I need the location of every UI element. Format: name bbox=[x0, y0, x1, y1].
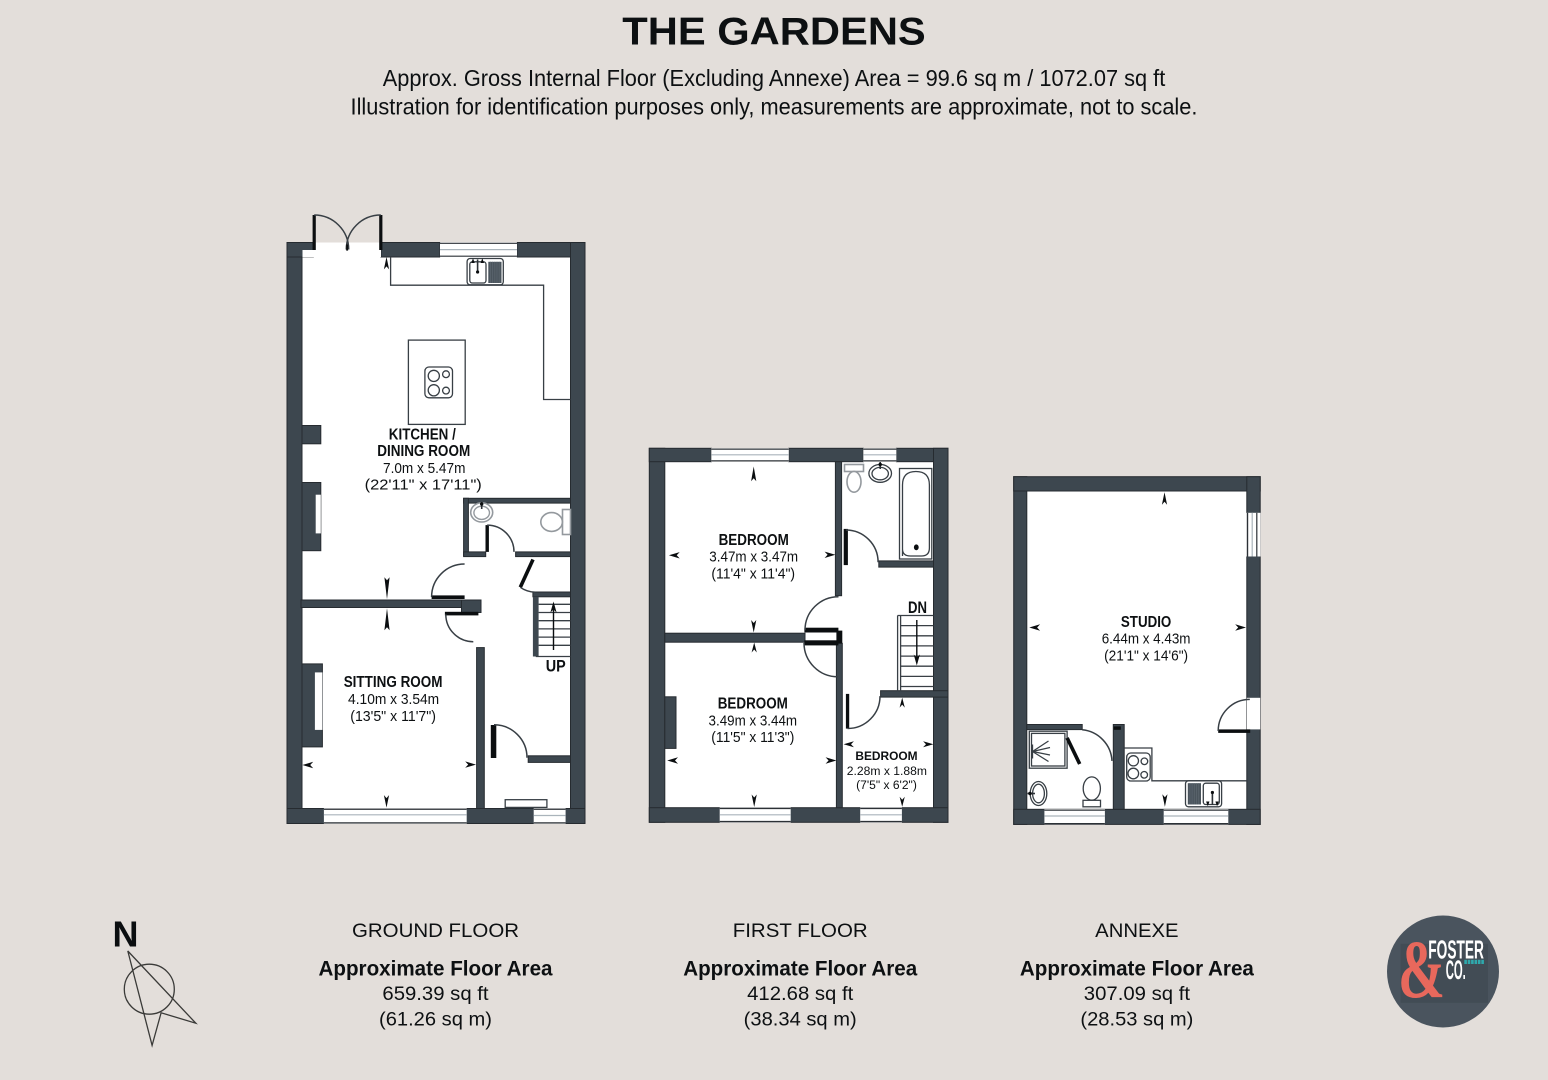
svg-text:412.68 sq ft: 412.68 sq ft bbox=[747, 983, 854, 1005]
svg-text:SITTING ROOM: SITTING ROOM bbox=[344, 674, 443, 691]
svg-text:UP: UP bbox=[546, 658, 566, 676]
svg-text:GROUND FLOOR: GROUND FLOOR bbox=[352, 920, 519, 942]
svg-text:N: N bbox=[113, 914, 139, 955]
svg-text:Approximate Floor Area: Approximate Floor Area bbox=[1020, 957, 1255, 981]
svg-text:3.47m x 3.47m: 3.47m x 3.47m bbox=[709, 550, 798, 566]
svg-text:Approximate Floor Area: Approximate Floor Area bbox=[319, 957, 554, 981]
svg-text:THE GARDENS: THE GARDENS bbox=[622, 11, 926, 54]
svg-text:(22'11" x 17'11"): (22'11" x 17'11") bbox=[365, 478, 482, 494]
svg-text:(61.26 sq m): (61.26 sq m) bbox=[379, 1009, 492, 1031]
svg-text:4.10m x 3.54m: 4.10m x 3.54m bbox=[348, 692, 439, 708]
svg-text:Illustration for identificatio: Illustration for identification purposes… bbox=[351, 93, 1198, 119]
svg-text:2.28m x 1.88m: 2.28m x 1.88m bbox=[847, 764, 927, 778]
svg-text:FIRST FLOOR: FIRST FLOOR bbox=[733, 920, 868, 942]
svg-text:(38.34 sq m): (38.34 sq m) bbox=[744, 1009, 857, 1031]
svg-text:DINING ROOM: DINING ROOM bbox=[377, 443, 470, 460]
svg-text:BEDROOM: BEDROOM bbox=[718, 696, 788, 713]
svg-text:(28.53 sq m): (28.53 sq m) bbox=[1080, 1009, 1193, 1031]
svg-text:BEDROOM: BEDROOM bbox=[719, 532, 789, 549]
svg-text:CO.: CO. bbox=[1446, 955, 1466, 985]
svg-text:ANNEXE: ANNEXE bbox=[1095, 920, 1178, 942]
svg-text:7.0m x 5.47m: 7.0m x 5.47m bbox=[383, 461, 465, 477]
svg-text:DN: DN bbox=[908, 599, 927, 617]
svg-text:Approximate Floor Area: Approximate Floor Area bbox=[683, 957, 918, 981]
svg-text:(11'5" x 11'3"): (11'5" x 11'3") bbox=[711, 730, 794, 746]
svg-text:(21'1" x 14'6"): (21'1" x 14'6") bbox=[1104, 649, 1188, 665]
svg-text:(7'5" x 6'2"): (7'5" x 6'2") bbox=[856, 778, 917, 792]
svg-text:(13'5" x 11'7"): (13'5" x 11'7") bbox=[350, 709, 436, 725]
svg-text:307.09 sq ft: 307.09 sq ft bbox=[1084, 983, 1191, 1005]
svg-text:Approx. Gross Internal Floor (: Approx. Gross Internal Floor (Excluding … bbox=[383, 65, 1166, 91]
svg-text:(11'4" x 11'4"): (11'4" x 11'4") bbox=[711, 566, 795, 582]
svg-text:STUDIO: STUDIO bbox=[1121, 614, 1171, 631]
svg-text:KITCHEN /: KITCHEN / bbox=[389, 427, 457, 444]
svg-text:6.44m x 4.43m: 6.44m x 4.43m bbox=[1102, 632, 1191, 648]
svg-text:3.49m x 3.44m: 3.49m x 3.44m bbox=[709, 713, 798, 729]
svg-text:BEDROOM: BEDROOM bbox=[855, 749, 917, 763]
svg-text:659.39 sq ft: 659.39 sq ft bbox=[382, 983, 489, 1005]
